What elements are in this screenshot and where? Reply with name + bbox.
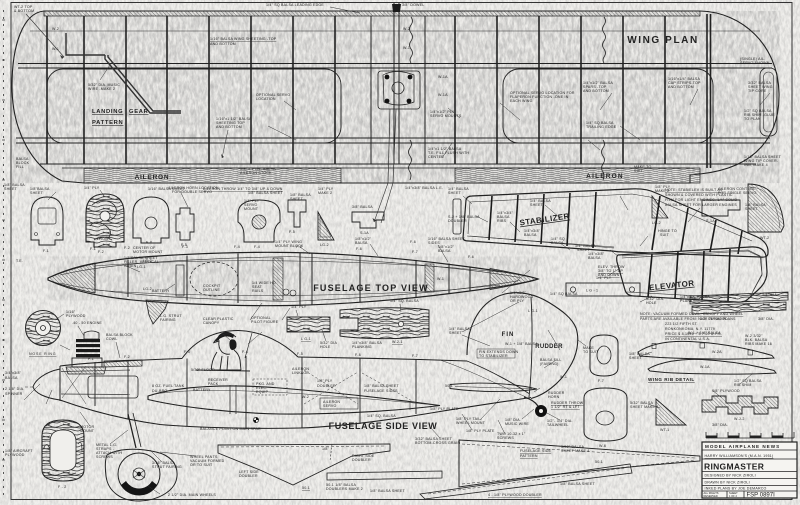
svg-text:F-7: F-7: [598, 379, 604, 383]
svg-text:1/4" PLY: 1/4" PLY: [596, 276, 612, 280]
svg-text:BATTERY: BATTERY: [193, 388, 211, 392]
svg-text:PLYWOOD: PLYWOOD: [66, 314, 86, 318]
svg-text:W-1 + 1/8" BALSA: W-1 + 1/8" BALSA: [688, 331, 721, 335]
svg-text:1/4" PLY: 1/4" PLY: [291, 305, 307, 309]
svg-text:223 1/2 FIFTH ST.: 223 1/2 FIFTH ST.: [665, 322, 698, 326]
svg-text:W-1 + 1/8" BALSA: W-1 + 1/8" BALSA: [505, 342, 538, 346]
svg-text:DOUBLER: DOUBLER: [352, 458, 371, 462]
svg-text:GEAR: GEAR: [129, 109, 149, 115]
svg-text:F-2: F-2: [124, 355, 130, 359]
svg-text:HOLE: HOLE: [320, 345, 331, 349]
svg-text:F-7: F-7: [412, 250, 418, 254]
svg-text:HARRY WILLIAMSON'S (M.A.N. 195: HARRY WILLIAMSON'S (M.A.N. 1951): [705, 454, 774, 458]
svg-text:BALANCE POINT ON MAIN SPAR: BALANCE POINT ON MAIN SPAR: [200, 427, 261, 431]
svg-text:PACK: PACK: [208, 382, 219, 386]
svg-text:1/16" BALSA WING SHEETING -TOP: 1/16" BALSA WING SHEETING -TOP: [210, 37, 277, 41]
svg-text:WING PLAN: WING PLAN: [627, 35, 699, 46]
svg-text:3/8" DIA.: 3/8" DIA.: [712, 423, 728, 427]
svg-text:W-2: W-2: [302, 395, 309, 399]
svg-text:BALSA: BALSA: [524, 233, 537, 237]
svg-text:IN CONTINENTAL U.S.A.: IN CONTINENTAL U.S.A.: [665, 337, 710, 341]
svg-text:DOUBLER: DOUBLER: [448, 219, 467, 223]
svg-text:DOUBLER: DOUBLER: [239, 474, 258, 478]
svg-text:AILERON STOCK: AILERON STOCK: [240, 171, 272, 175]
svg-text:FIN: FIN: [502, 332, 515, 338]
svg-text:FUSELAGE SIDES: FUSELAGE SIDES: [364, 389, 398, 393]
svg-text:SHEET MAKE 4: SHEET MAKE 4: [561, 449, 590, 453]
svg-text:RIBS MAKE 16: RIBS MAKE 16: [745, 342, 772, 346]
svg-text:1/8" BALSA SHEET: 1/8" BALSA SHEET: [370, 489, 405, 493]
svg-text:NOTE: STAB/ELEV IS BUILT AS: NOTE: STAB/ELEV IS BUILT AS: [665, 188, 723, 192]
svg-text:SHEET MAKE 4: SHEET MAKE 4: [630, 405, 659, 409]
svg-text:W-2: W-2: [52, 27, 59, 31]
svg-text:CENTER: CENTER: [428, 155, 444, 159]
svg-text:SHEET: SHEET: [629, 356, 643, 360]
svg-text:STRUT FAIRING: STRUT FAIRING: [152, 465, 182, 469]
svg-text:WING RIB DETAIL: WING RIB DETAIL: [648, 377, 695, 382]
svg-text:F-4: F-4: [234, 245, 240, 249]
svg-text:PLANKING: PLANKING: [352, 345, 372, 349]
svg-text:3/8" DIA.: 3/8" DIA.: [758, 317, 774, 321]
svg-text:F-1: F-1: [90, 247, 96, 251]
svg-text:BALSA: BALSA: [588, 256, 601, 260]
svg-text:MAKE 2: MAKE 2: [318, 191, 332, 195]
svg-text:W-1: W-1: [52, 47, 59, 51]
svg-text:TO PLAN: TO PLAN: [744, 117, 761, 121]
svg-text:3/8" BALSA: 3/8" BALSA: [352, 205, 373, 209]
svg-text:SHEET: SHEET: [30, 191, 44, 195]
svg-text:4 - 1/8" PLYWOOD DOUBLER: 4 - 1/8" PLYWOOD DOUBLER: [488, 493, 542, 497]
svg-text:SPINNER: SPINNER: [5, 392, 23, 396]
svg-text:8 OZ. FUEL TANK: 8 OZ. FUEL TANK: [152, 384, 185, 388]
svg-text:1/4" SQ. BALSA: 1/4" SQ. BALSA: [367, 414, 396, 418]
svg-text:SCREWS: SCREWS: [96, 455, 113, 459]
svg-text:AILERON: AILERON: [586, 173, 624, 180]
svg-text:F-6: F-6: [410, 240, 416, 244]
svg-text:1 1/2" RT & LFT: 1 1/2" RT & LFT: [551, 405, 580, 409]
svg-text:F-5: F-5: [297, 352, 303, 356]
svg-text:INKED PLANS BY JOE DEMARCO: INKED PLANS BY JOE DEMARCO: [705, 487, 767, 491]
svg-text:F-2: F-2: [124, 246, 130, 250]
svg-text:L G-1: L G-1: [301, 337, 311, 341]
svg-text:1/8" PLY PLATE: 1/8" PLY PLATE: [466, 429, 495, 433]
svg-text:W-1A: W-1A: [438, 75, 448, 79]
svg-text:OR TO SUIT: OR TO SUIT: [190, 463, 213, 467]
svg-text:DESIGNED BY NICK ZIROLI: DESIGNED BY NICK ZIROLI: [705, 474, 756, 478]
svg-text:BALSA: BALSA: [551, 241, 564, 245]
svg-text:.40 - 50 ENGINE: .40 - 50 ENGINE: [72, 321, 102, 325]
svg-text:W-1A: W-1A: [700, 365, 710, 369]
svg-text:OR PLY: OR PLY: [510, 299, 525, 303]
svg-text:1/8": 1/8": [322, 447, 330, 451]
svg-text:50-1: 50-1: [445, 384, 453, 388]
svg-text:F-3: F-3: [146, 241, 152, 245]
svg-text:SERVO SHOWN: SERVO SHOWN: [740, 61, 770, 65]
svg-text:EACH WING: EACH WING: [510, 99, 533, 103]
svg-text:BALSA: BALSA: [355, 241, 368, 245]
svg-text:1/4" PLY: 1/4" PLY: [84, 186, 100, 190]
svg-text:3/4"x3/8": 3/4"x3/8": [5, 371, 22, 375]
svg-text:AILERON: AILERON: [135, 174, 170, 181]
svg-text:FUSELAGE SIDE VIEW: FUSELAGE SIDE VIEW: [329, 421, 438, 431]
svg-text:3/8" DOWEL: 3/8" DOWEL: [402, 3, 424, 7]
svg-text:SUIT: SUIT: [660, 233, 670, 237]
svg-text:AND BOTTOM: AND BOTTOM: [583, 89, 609, 93]
svg-text:W-1: W-1: [560, 375, 567, 379]
svg-text:CANOPY: CANOPY: [203, 321, 220, 325]
svg-text:WHEEL MOUNT: WHEEL MOUNT: [456, 421, 486, 425]
svg-text:F-6: F-6: [356, 247, 362, 251]
svg-text:1/8" PLY PLATE: 1/8" PLY PLATE: [430, 407, 459, 411]
svg-text:BALSA: BALSA: [5, 376, 18, 380]
svg-text:W-2A: W-2A: [712, 350, 722, 354]
svg-text:FUSELAGE SIDE: FUSELAGE SIDE: [520, 449, 552, 453]
svg-text:F-6: F-6: [468, 255, 474, 259]
svg-text:SHEET: SHEET: [448, 191, 462, 195]
svg-text:LANDING: LANDING: [92, 109, 123, 115]
svg-text:NOSE RING: NOSE RING: [29, 352, 56, 356]
svg-text:SHEET: SHEET: [290, 197, 304, 201]
svg-text:FILM FOR LIGHT ENGINES. 1/4" S: FILM FOR LIGHT ENGINES. 1/4" SOLID: [665, 198, 738, 202]
svg-text:W-2-1: W-2-1: [392, 340, 403, 344]
svg-text:TRAILING EDGE: TRAILING EDGE: [586, 125, 617, 129]
svg-text:F-7: F-7: [412, 354, 418, 358]
svg-text:W-2: W-2: [403, 27, 410, 31]
svg-text:GRAIN: GRAIN: [124, 264, 137, 268]
svg-text:F-6: F-6: [355, 353, 361, 357]
svg-text:1/8" BALSA SHEET: 1/8" BALSA SHEET: [560, 482, 595, 486]
svg-text:MOTOR MOUNT: MOTOR MOUNT: [133, 250, 163, 254]
svg-text:SHEET: SHEET: [449, 331, 463, 335]
svg-text:MOUNT: MOUNT: [244, 207, 259, 211]
svg-text:FRONT: FRONT: [97, 237, 111, 241]
svg-text:SHEET: SHEET: [4, 187, 18, 191]
svg-text:LOCATION: LOCATION: [256, 97, 276, 101]
svg-text:F - 2: F - 2: [58, 485, 66, 489]
svg-text:3/8" PLYWOOD: 3/8" PLYWOOD: [712, 389, 740, 393]
svg-text:TO STABILIZER: TO STABILIZER: [479, 354, 508, 358]
svg-text:1/4"x3/8" BALSA L.E.: 1/4"x3/8" BALSA L.E.: [405, 186, 443, 190]
svg-text:WT-1: WT-1: [660, 428, 669, 432]
svg-text:2 1/2" DIA. MAIN WHEELS: 2 1/2" DIA. MAIN WHEELS: [168, 493, 216, 497]
svg-text:DOUBLERS MAKE 2: DOUBLERS MAKE 2: [326, 487, 363, 491]
svg-text:SUIT: SUIT: [634, 169, 644, 173]
svg-text:RAILS: RAILS: [252, 289, 264, 293]
svg-text:RUDDER: RUDDER: [535, 344, 563, 350]
svg-text:L G - 1: L G - 1: [586, 289, 598, 293]
svg-text:LINKAGE: LINKAGE: [292, 371, 309, 375]
svg-text:F-4: F-4: [254, 245, 260, 249]
svg-text:AND BOTTOM: AND BOTTOM: [210, 42, 236, 46]
svg-text:DOUBLER: DOUBLER: [317, 384, 336, 388]
svg-text:(FAIRING): (FAIRING): [540, 362, 559, 366]
svg-text:FSP 0897I: FSP 0897I: [747, 493, 776, 499]
svg-text:BATTERY: BATTERY: [152, 289, 170, 293]
svg-text:5/32" FLOOR: 5/32" FLOOR: [191, 368, 215, 372]
svg-text:PLYWOOD: PLYWOOD: [5, 453, 25, 457]
svg-text:L G-1: L G-1: [528, 309, 538, 313]
svg-text:FAIRING: FAIRING: [160, 318, 176, 322]
svg-text:BALSA: BALSA: [438, 249, 451, 253]
svg-text:S-1A: S-1A: [706, 219, 715, 223]
svg-text:RINGMASTER: RINGMASTER: [704, 462, 764, 472]
svg-text:W-1: W-1: [403, 46, 410, 50]
svg-text:1/4" SQ BALSA: 1/4" SQ BALSA: [550, 292, 578, 296]
svg-text:W-1A: W-1A: [438, 93, 448, 97]
svg-text:F-2: F-2: [98, 250, 104, 254]
svg-text:1/4" SQ. BALSA: 1/4" SQ. BALSA: [390, 299, 419, 303]
svg-text:OUTLINE: OUTLINE: [203, 288, 220, 292]
svg-text:F-4: F-4: [242, 350, 248, 354]
svg-text:PATTERN: PATTERN: [92, 120, 123, 126]
svg-text:MODEL AIRPLANE NEWS: MODEL AIRPLANE NEWS: [705, 444, 780, 449]
svg-text:LG-2: LG-2: [143, 287, 152, 291]
svg-text:2 1/8" DIA.: 2 1/8" DIA.: [5, 387, 24, 391]
svg-text:DRAWN BY NICK ZIROLI: DRAWN BY NICK ZIROLI: [705, 481, 750, 485]
svg-text:1/8" PLYWOOD: 1/8" PLYWOOD: [700, 317, 728, 321]
svg-text:AILERON THROW 1/4" TO 3/8" UP: AILERON THROW 1/4" TO 3/8" UP & DOWN: [203, 187, 283, 191]
svg-text:PATTERN: PATTERN: [520, 454, 538, 458]
svg-text:RESERVED: RESERVED: [704, 494, 718, 498]
svg-text:MOUNT BLOCK: MOUNT BLOCK: [275, 244, 304, 248]
svg-text:MUSIC WIRE: MUSIC WIRE: [505, 422, 529, 426]
svg-text:ING, MAKE 4: ING, MAKE 4: [744, 163, 768, 167]
svg-text:FILL: FILL: [16, 165, 24, 169]
svg-text:SHOWN & COVERED WITH PLASTIC: SHOWN & COVERED WITH PLASTIC: [665, 193, 733, 197]
svg-text:HOLE: HOLE: [646, 301, 657, 305]
svg-text:RIBS: RIBS: [497, 219, 507, 223]
svg-text:TAILWHEEL: TAILWHEEL: [547, 423, 569, 427]
svg-text:SCREWS: SCREWS: [497, 436, 514, 440]
svg-text:SHEET: SHEET: [530, 203, 544, 207]
svg-text:F-5: F-5: [289, 230, 295, 234]
svg-text:SERVO MOUNTS: SERVO MOUNTS: [430, 114, 462, 118]
svg-text:F-1: F-1: [88, 357, 94, 361]
svg-text:50-1: 50-1: [595, 460, 603, 464]
svg-text:50-1: 50-1: [302, 486, 310, 490]
svg-text:F-3: F-3: [184, 350, 190, 354]
svg-text:BALSA SHEET FOR LARGER ENGINES: BALSA SHEET FOR LARGER ENGINES: [665, 203, 737, 207]
svg-text:FUSELAGE TOP VIEW: FUSELAGE TOP VIEW: [313, 283, 429, 293]
svg-text:F-3: F-3: [182, 245, 188, 249]
svg-text:T.E.: T.E.: [16, 259, 23, 263]
svg-text:SERVO: SERVO: [323, 404, 337, 408]
svg-text:WIRE -MAKE 2: WIRE -MAKE 2: [88, 87, 115, 91]
svg-text:PILOT FIGURE: PILOT FIGURE: [251, 320, 279, 324]
svg-text:AND BOTTOM: AND BOTTOM: [668, 85, 694, 89]
svg-text:BOTTOM-CROSS GRAIN: BOTTOM-CROSS GRAIN: [415, 441, 460, 445]
svg-text:HORN: HORN: [548, 395, 560, 399]
svg-text:RIB SHIM: RIB SHIM: [734, 383, 752, 387]
svg-text:W-J-2: W-J-2: [734, 417, 745, 421]
svg-text:& BOTTOM: & BOTTOM: [14, 9, 34, 13]
svg-text:AND BOTTOM: AND BOTTOM: [216, 125, 242, 129]
svg-text:1/8" BALSA SHEET: 1/8" BALSA SHEET: [248, 191, 283, 195]
svg-text:W-1: W-1: [437, 277, 444, 281]
svg-text:1 OF 2: 1 OF 2: [729, 494, 737, 498]
svg-text:COWL: COWL: [106, 337, 118, 341]
svg-text:WT-2: WT-2: [760, 236, 769, 240]
svg-text:EQUIP: EQUIP: [256, 390, 269, 394]
svg-text:1/8" BALSA SHEET: 1/8" BALSA SHEET: [364, 384, 399, 388]
svg-text:TIP CORE: TIP CORE: [748, 89, 767, 93]
svg-text:S-1A: S-1A: [360, 231, 369, 235]
svg-text:W-6: W-6: [599, 444, 606, 448]
svg-text:1/4" SQ BALSA LEADING EDGE: 1/4" SQ BALSA LEADING EDGE: [266, 3, 324, 7]
svg-text:LG-1: LG-1: [137, 265, 146, 269]
svg-text:LG-2: LG-2: [320, 243, 329, 247]
svg-text:F-1: F-1: [43, 249, 49, 253]
